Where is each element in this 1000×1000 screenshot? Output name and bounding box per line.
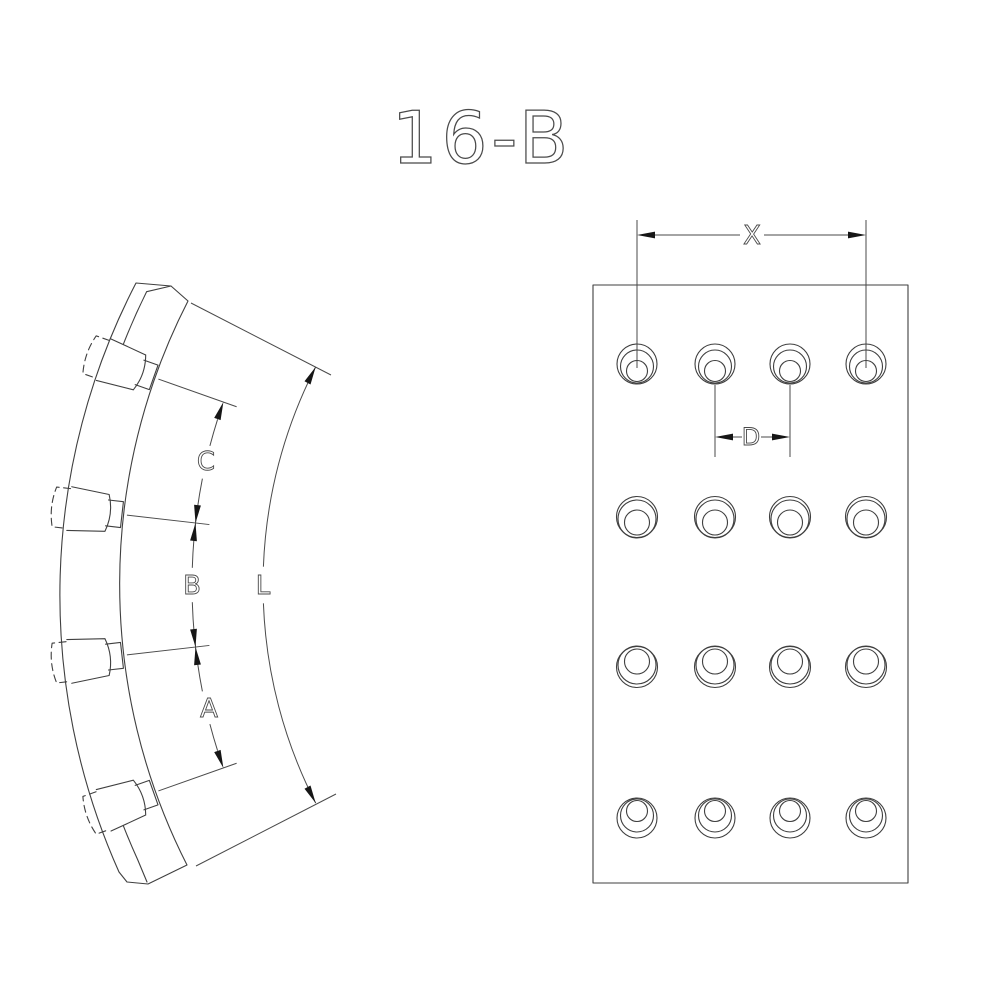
side-profile-view: C B A L: [49, 283, 336, 884]
hole-circle: [625, 510, 650, 535]
arrowhead: [305, 786, 316, 804]
hole-circle: [618, 500, 656, 538]
hole-circle: [705, 801, 726, 822]
hole-circle: [771, 646, 809, 684]
plate-outline: [593, 285, 908, 883]
arrowhead: [194, 647, 201, 665]
arrowhead: [214, 750, 223, 768]
dim-label-b: B: [183, 571, 201, 601]
hole-circle: [847, 646, 885, 684]
dim-label-d: D: [742, 423, 760, 451]
hole-circle: [854, 510, 879, 535]
hole-circle: [780, 801, 801, 822]
arrowhead: [214, 402, 223, 420]
arrowhead: [190, 629, 197, 647]
hole-circle: [696, 646, 734, 684]
dim-label-c: C: [197, 447, 215, 477]
hole-circle: [847, 500, 885, 538]
hole-circle: [778, 649, 803, 674]
hole-circle: [625, 649, 650, 674]
hole-circle: [699, 350, 732, 383]
hole-circle: [780, 361, 801, 382]
hole-circle: [774, 350, 807, 383]
arrowhead: [190, 523, 197, 541]
dim-label-l: L: [256, 571, 271, 601]
arrowhead: [848, 232, 866, 239]
arrowhead: [194, 505, 201, 523]
hole-circle: [705, 361, 726, 382]
hole-circle: [696, 500, 734, 538]
dim-arc-length-l: L: [191, 303, 336, 866]
hole-circle: [771, 500, 809, 538]
arrowhead: [715, 434, 733, 441]
dim-x: X: [637, 220, 866, 368]
hole-circle: [703, 510, 728, 535]
hole-circle: [856, 801, 877, 822]
hole-circle: [778, 510, 803, 535]
hole-circle: [774, 799, 807, 832]
hole-pattern-view: X D: [593, 220, 908, 883]
technical-drawing: 16-B C B A L: [0, 0, 1000, 1000]
hole-circle: [850, 799, 883, 832]
hole-circle: [699, 799, 732, 832]
hole-circle: [621, 799, 654, 832]
dim-label-a: A: [200, 694, 218, 724]
counterbore-hole-feature: [49, 485, 212, 547]
arrowhead: [637, 232, 655, 239]
hole-circle: [627, 801, 648, 822]
hole-circle: [618, 646, 656, 684]
arrowhead: [772, 434, 790, 441]
hole-grid: [617, 344, 887, 838]
dim-label-x: X: [743, 221, 761, 251]
dim-chain-abc: C B A: [183, 402, 223, 768]
hole-circle: [703, 649, 728, 674]
drawing-title: 16-B: [392, 96, 572, 180]
arrowhead: [305, 367, 316, 385]
dim-d: D: [715, 385, 790, 457]
drawing-canvas: 16-B C B A L: [0, 0, 1000, 1000]
hole-circle: [854, 649, 879, 674]
counterbore-hole-feature: [49, 624, 212, 686]
